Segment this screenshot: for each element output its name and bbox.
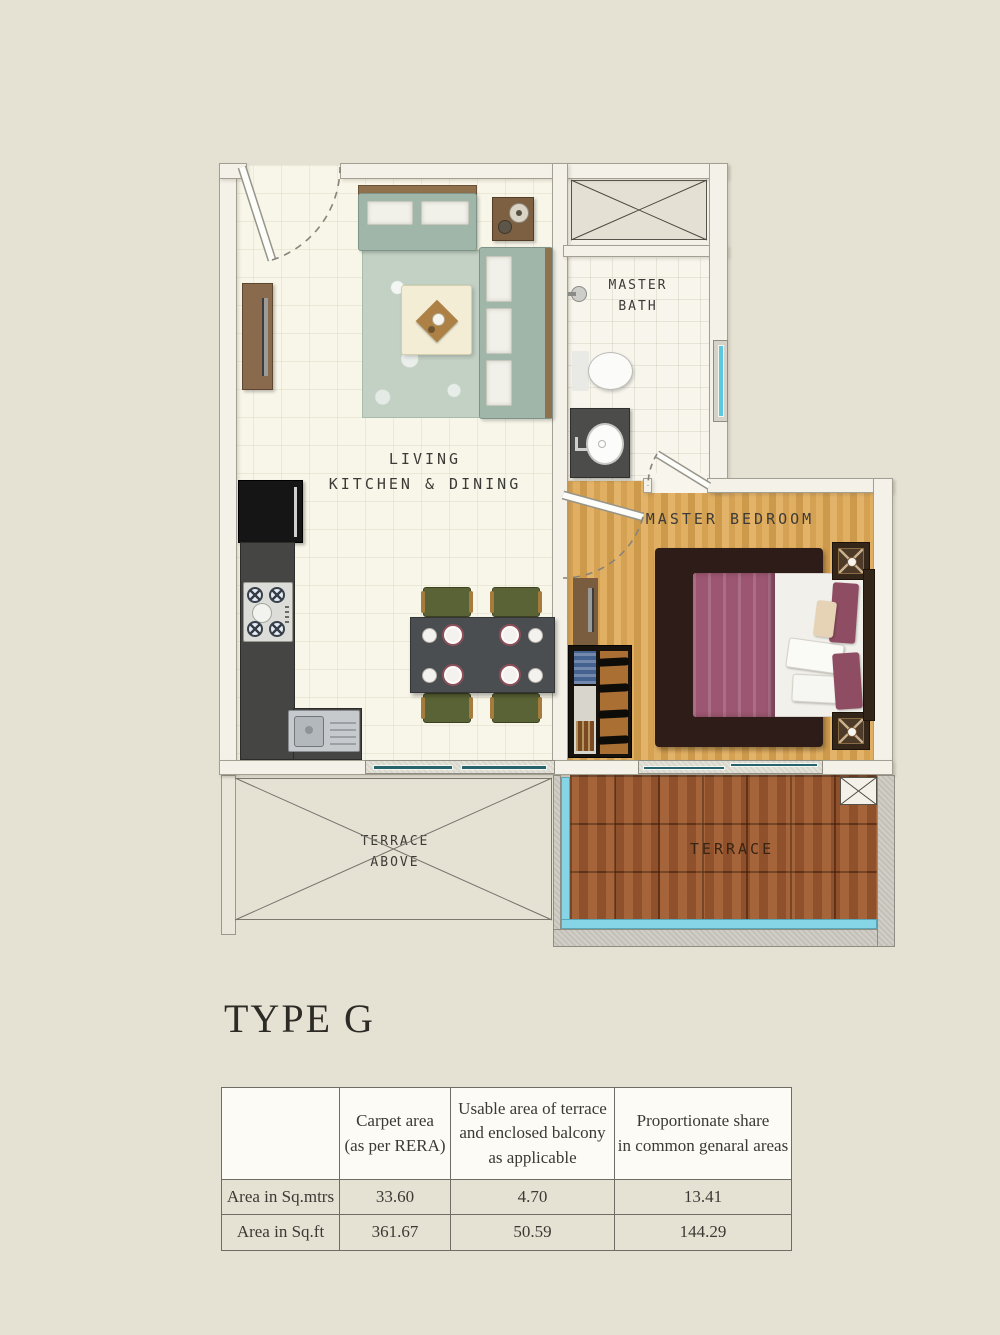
sink-drain [305, 726, 313, 734]
table-header-blank [222, 1088, 340, 1180]
header-terrace-line3: as applicable [488, 1146, 576, 1170]
header-common-line1: Proportionate share [637, 1109, 770, 1133]
stove-burner [269, 621, 285, 637]
brochure-page: { "page": { "title": "TYPE G", "backgrou… [0, 0, 1000, 1335]
row-sqft-carpet: 361.67 [340, 1215, 451, 1250]
row-sqmtrs-terrace: 4.70 [451, 1180, 615, 1215]
plant-center [516, 210, 522, 216]
decor-bowl [498, 220, 512, 234]
wardrobe [568, 645, 632, 758]
row-sqmtrs-common: 13.41 [615, 1180, 791, 1215]
dining-table [410, 617, 555, 693]
hanging-garment [598, 709, 629, 719]
terrace-above-line1: TERRACE [295, 831, 495, 852]
duct-shaft-box [571, 180, 707, 240]
bath-sink-drain [598, 440, 606, 448]
bed-headboard [863, 569, 875, 721]
wall-terrace-above-left [221, 775, 236, 935]
wall-shaft-bath [563, 245, 728, 257]
refrigerator-handle [294, 487, 297, 537]
wall-left [219, 163, 237, 775]
row-sqmtrs-carpet: 33.60 [340, 1180, 451, 1215]
terrace-duct-box [840, 777, 877, 805]
row-sqft-label: Area in Sq.ft [222, 1215, 340, 1250]
table-header-terrace-area: Usable area of terrace and enclosed balc… [451, 1088, 615, 1180]
master-bath-label: MASTER BATH [578, 275, 698, 318]
stove-burner [269, 587, 285, 603]
plate [442, 624, 464, 646]
area-table: Carpet area (as per RERA) Usable area of… [221, 1087, 792, 1251]
terrace-label: TERRACE [647, 837, 817, 862]
coffee-table [401, 285, 472, 355]
wall-bedroom-right [873, 478, 893, 775]
terrace-railing-left [561, 777, 570, 923]
hanging-garment [598, 735, 629, 745]
plate [499, 624, 521, 646]
shower-arm [568, 292, 576, 296]
tray-plate [432, 313, 445, 326]
living-window-1 [373, 765, 453, 770]
kitchen-sink [288, 710, 360, 752]
living-window-2 [461, 765, 547, 770]
wardrobe-bag [576, 721, 594, 751]
bedroom-window-1 [643, 766, 725, 770]
lamp [838, 718, 864, 744]
bath-window [718, 345, 724, 417]
bedroom-tv-unit [573, 578, 598, 645]
toilet-tank [572, 351, 589, 391]
side-table [492, 197, 534, 241]
bath-door-floor-patch [651, 473, 707, 493]
sofa-cushion [421, 201, 469, 225]
sink-drainboard [330, 719, 356, 745]
terrace-above-label: TERRACE ABOVE [295, 831, 495, 874]
bed-pillow-maroon [832, 652, 863, 710]
tray-cup [428, 326, 435, 333]
header-common-line2: in common genaral areas [618, 1134, 788, 1158]
tv-panel [262, 298, 268, 376]
tv-unit [242, 283, 273, 390]
table-header-carpet-area: Carpet area (as per RERA) [340, 1088, 451, 1180]
sofa-cushion [486, 308, 512, 354]
row-sqft-terrace: 50.59 [451, 1215, 615, 1250]
bedroom-window-2 [730, 763, 818, 767]
master-bedroom-label: MASTER BEDROOM [610, 507, 850, 532]
wall-bedroom-top [707, 478, 893, 493]
header-terrace-line2: and enclosed balcony [459, 1121, 605, 1145]
plate [499, 664, 521, 686]
terrace-wall-right [877, 775, 895, 947]
stove-knobs [285, 605, 289, 623]
header-carpet-line1: Carpet area [356, 1109, 434, 1133]
row-sqmtrs-label: Area in Sq.mtrs [222, 1180, 340, 1215]
dining-chair [492, 693, 540, 723]
row-sqft-common: 144.29 [615, 1215, 791, 1250]
stove-center-plate [252, 603, 272, 623]
stove-burner [247, 621, 263, 637]
floor-plan: LIVING KITCHEN & DINING MASTER BATH MAST… [215, 155, 905, 955]
stove-burner [247, 587, 263, 603]
sofa-side-trim [545, 248, 552, 418]
plate [528, 668, 543, 683]
wall-top-left-stub [219, 163, 247, 179]
plate [422, 668, 437, 683]
living-room-label: LIVING KITCHEN & DINING [310, 447, 540, 497]
header-carpet-line2: (as per RERA) [344, 1134, 445, 1158]
sofa-cushion [486, 360, 512, 406]
terrace-wall-left [553, 775, 561, 947]
header-terrace-line1: Usable area of terrace [458, 1097, 607, 1121]
wall-top [340, 163, 728, 179]
plate [442, 664, 464, 686]
toilet-bowl [588, 352, 633, 390]
plate [528, 628, 543, 643]
sofa-three-seater [479, 247, 553, 419]
sofa-cushion [486, 256, 512, 302]
bed-blanket [693, 573, 775, 717]
dining-chair [423, 693, 471, 723]
table-header-common-area: Proportionate share in common genaral ar… [615, 1088, 791, 1180]
gas-stove [243, 582, 293, 642]
sofa-two-seater [358, 193, 477, 251]
dining-chair [492, 587, 540, 617]
terrace-above-line2: ABOVE [295, 852, 495, 873]
bath-label-line1: MASTER [578, 275, 698, 296]
living-label-line2: KITCHEN & DINING [310, 472, 540, 497]
hanging-garment [598, 683, 629, 693]
bedroom-tv-panel [588, 588, 594, 632]
sofa-cushion [367, 201, 413, 225]
page-title: TYPE G [224, 995, 375, 1042]
wardrobe-folded-clothes [574, 651, 596, 684]
hanging-garment [598, 657, 629, 667]
wall-bath-right [709, 163, 728, 493]
terrace-railing-bottom [561, 919, 877, 929]
bath-vanity [570, 408, 630, 478]
bath-label-line2: BATH [578, 296, 698, 317]
wall-door-pier [643, 478, 652, 493]
lamp [838, 548, 864, 574]
dining-chair [423, 587, 471, 617]
terrace-wall-bottom [553, 929, 895, 947]
living-label-line1: LIVING [310, 447, 540, 472]
plate [422, 628, 437, 643]
kitchen-counter-left [240, 542, 295, 760]
bath-faucet [575, 437, 587, 451]
refrigerator [238, 480, 303, 543]
